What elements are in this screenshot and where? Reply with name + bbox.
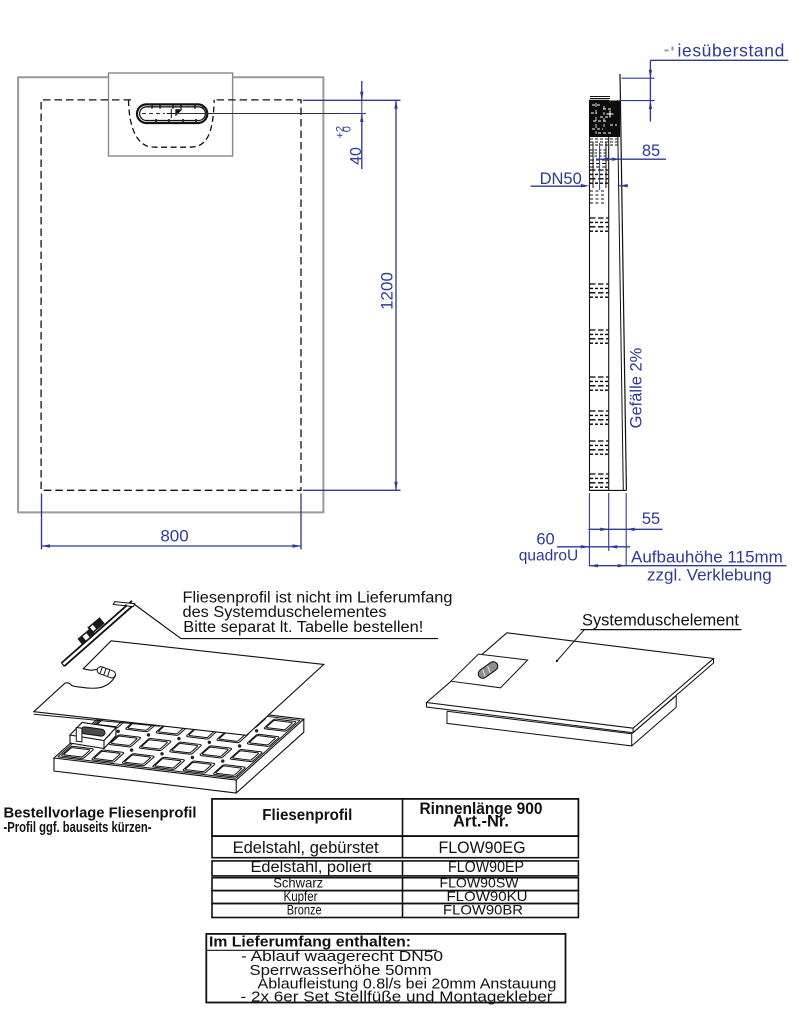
- svg-text:Edelstahl, gebürstet: Edelstahl, gebürstet: [233, 839, 379, 857]
- svg-text:-Profil ggf. bauseits kürzen-: -Profil ggf. bauseits kürzen-: [4, 819, 152, 836]
- svg-text:0: 0: [342, 126, 354, 132]
- svg-text:Systemduschelement: Systemduschelement: [582, 612, 739, 630]
- svg-text:Edelstahl, poliert: Edelstahl, poliert: [251, 859, 373, 876]
- svg-text:800: 800: [160, 527, 188, 546]
- svg-text:Fliesenprofil: Fliesenprofil: [262, 807, 352, 824]
- svg-text:Bitte separat lt. Tabelle best: Bitte separat lt. Tabelle bestellen!: [183, 619, 423, 636]
- svg-text:Art.-Nr.: Art.-Nr.: [453, 812, 509, 830]
- svg-text:1200: 1200: [377, 272, 396, 310]
- svg-text:quadroU: quadroU: [519, 548, 578, 565]
- svg-text:FLOW90EP: FLOW90EP: [448, 859, 524, 876]
- svg-text:Gefälle 2%: Gefälle 2%: [628, 347, 646, 428]
- svg-text:iesüberstand: iesüberstand: [678, 41, 785, 61]
- svg-text:55: 55: [642, 510, 660, 528]
- svg-text:- 2x 6er Set Stellfüße und Mon: - 2x 6er Set Stellfüße und Montagekleber: [241, 988, 553, 1005]
- svg-text:40: 40: [348, 147, 365, 165]
- svg-text:FLOW90BR: FLOW90BR: [443, 902, 523, 918]
- svg-text:DN50: DN50: [540, 170, 582, 188]
- svg-text:Aufbauhöhe 115mm: Aufbauhöhe 115mm: [631, 548, 783, 567]
- svg-text:60: 60: [536, 531, 554, 549]
- svg-text:Bronze: Bronze: [287, 902, 322, 918]
- svg-text:FLOW90EG: FLOW90EG: [439, 839, 526, 857]
- svg-text:85: 85: [642, 142, 660, 160]
- svg-text:zzgl. Verklebung: zzgl. Verklebung: [647, 566, 772, 585]
